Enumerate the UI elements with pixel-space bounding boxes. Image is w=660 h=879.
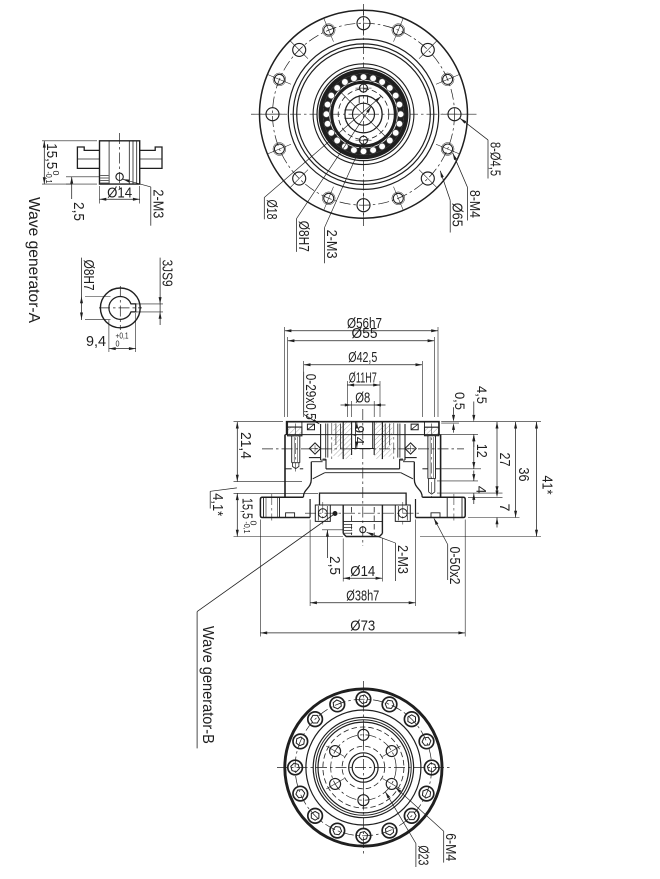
svg-text:0-29x0,5: 0-29x0,5 — [302, 374, 319, 420]
svg-text:15,5: 15,5 — [43, 143, 60, 169]
svg-text:Ø18: Ø18 — [263, 200, 280, 220]
svg-text:8-Ø4,5: 8-Ø4,5 — [487, 142, 504, 176]
svg-text:27: 27 — [496, 453, 513, 467]
svg-text:2-M3: 2-M3 — [323, 230, 340, 259]
svg-text:9,4: 9,4 — [352, 426, 367, 445]
svg-text:Ø55: Ø55 — [352, 325, 378, 342]
svg-text:Ø23: Ø23 — [414, 845, 431, 865]
svg-text:Ø14: Ø14 — [350, 563, 375, 580]
svg-text:7: 7 — [497, 504, 512, 512]
svg-text:6-M4: 6-M4 — [442, 833, 459, 861]
svg-text:Ø11H7: Ø11H7 — [349, 370, 377, 387]
svg-text:12: 12 — [473, 444, 490, 458]
svg-text:0-50x2: 0-50x2 — [446, 547, 463, 585]
svg-text:Ø73: Ø73 — [350, 618, 375, 635]
svg-text:41*: 41* — [539, 476, 556, 495]
svg-text:Ø14: Ø14 — [107, 184, 132, 201]
svg-text:Wave generator-B: Wave generator-B — [199, 626, 216, 744]
svg-text:Ø8H7: Ø8H7 — [80, 260, 97, 291]
svg-text:0,5: 0,5 — [452, 392, 467, 410]
svg-text:Ø8: Ø8 — [355, 390, 370, 407]
svg-text:4,1*: 4,1* — [209, 493, 226, 516]
svg-text:Ø8H7: Ø8H7 — [295, 221, 312, 252]
svg-text:-0,1: -0,1 — [44, 172, 53, 184]
svg-text:2,5: 2,5 — [326, 556, 343, 575]
svg-text:8-M4: 8-M4 — [466, 190, 483, 218]
svg-text:Ø38h7: Ø38h7 — [346, 587, 379, 604]
svg-text:3JS9: 3JS9 — [159, 260, 176, 287]
svg-text:15,5: 15,5 — [239, 498, 256, 519]
svg-text:0: 0 — [116, 340, 120, 349]
svg-text:9,4: 9,4 — [86, 333, 106, 350]
svg-text:Ø65: Ø65 — [449, 203, 466, 227]
svg-text:2-M3: 2-M3 — [149, 189, 166, 218]
svg-text:36: 36 — [515, 468, 532, 482]
svg-text:Wave generator-A: Wave generator-A — [25, 197, 42, 324]
svg-text:-0,1: -0,1 — [242, 522, 251, 534]
svg-text:2,5: 2,5 — [70, 202, 87, 221]
svg-text:4,5: 4,5 — [474, 386, 489, 404]
svg-text:2-M3: 2-M3 — [394, 545, 411, 574]
svg-text:21,4: 21,4 — [237, 432, 254, 459]
svg-text:Ø42,5: Ø42,5 — [348, 349, 377, 366]
